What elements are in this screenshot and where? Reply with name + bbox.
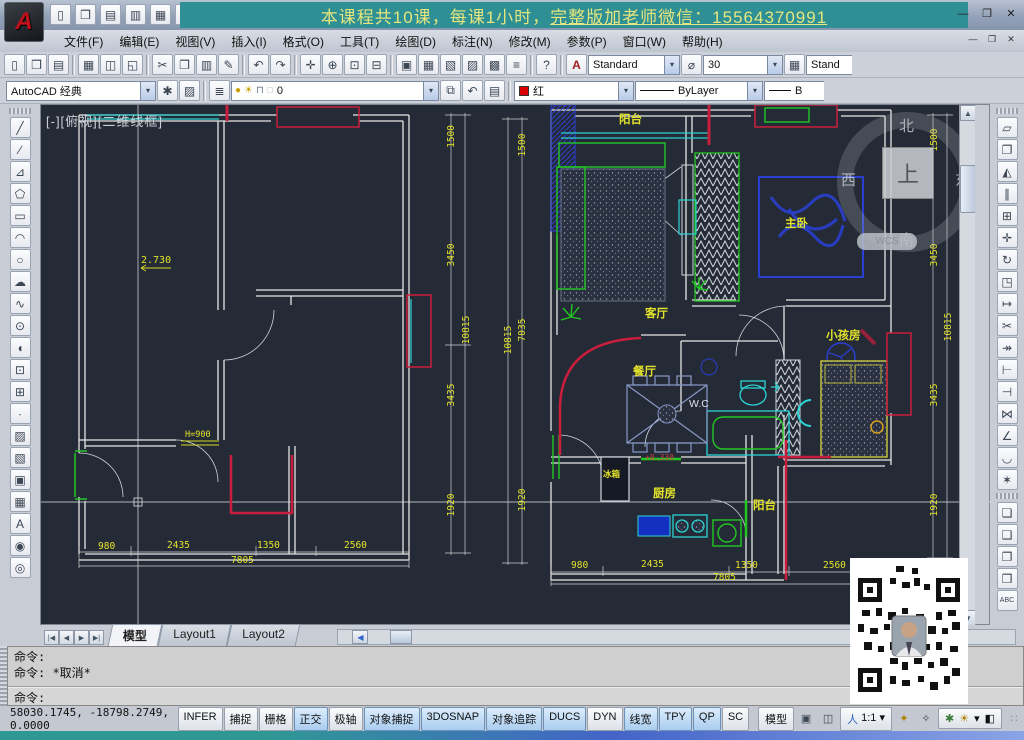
dim-text: 1920 (517, 488, 528, 511)
status-toggle-对象追踪[interactable]: 对象追踪 (486, 707, 542, 731)
window-height-text: H=900 (185, 430, 211, 440)
chevron-down-icon[interactable]: ▾ (618, 82, 633, 100)
polygon-icon[interactable]: ⬠ (10, 183, 31, 204)
break-at-point-icon[interactable]: ⊢ (997, 359, 1018, 380)
menu-item-0[interactable]: 文件(F) (56, 30, 111, 53)
match-properties-icon[interactable]: ✎ (218, 54, 239, 75)
left-floor-plan (75, 105, 431, 560)
dim-text: 3435 (929, 384, 940, 407)
annotation-scale-button[interactable]: 人 1:1 ▾ (840, 707, 892, 731)
dim-text: 10815 (943, 313, 954, 342)
banner-text-2: 完整版加老师微信：15564370991 (550, 3, 827, 28)
status-toggle-捕捉[interactable]: 捕捉 (224, 707, 258, 731)
dim-text: 2560 (344, 540, 367, 551)
auto-annotate-icon[interactable]: ✧ (916, 712, 936, 725)
title-bar: ▯❒▤▥▦↶ 本课程共10课，每课1小时，完整版加老师微信：1556437099… (0, 0, 1024, 30)
layer-previous-icon[interactable]: ↶ (462, 80, 483, 101)
workspace-settings-icon[interactable]: ✱ (157, 80, 178, 101)
dim-text: 1350 (735, 560, 758, 571)
horizontal-scroll-thumb[interactable] (390, 630, 412, 644)
status-toggle-正交[interactable]: 正交 (294, 707, 328, 731)
undo-icon[interactable]: ↶ (248, 54, 269, 75)
send-to-back-icon[interactable]: ❑ (997, 524, 1018, 545)
status-toggle-infer[interactable]: INFER (178, 707, 223, 731)
offset-icon[interactable]: ∥ (997, 183, 1018, 204)
dim-text: 3435 (446, 384, 457, 407)
bring-to-front-icon[interactable]: ❏ (997, 502, 1018, 523)
model-space-button[interactable]: 模型 (758, 707, 794, 731)
paste-icon[interactable]: ▥ (196, 54, 217, 75)
rectangle-icon[interactable]: ▭ (10, 205, 31, 226)
status-toggle-对象捕捉[interactable]: 对象捕捉 (364, 707, 420, 731)
status-bar: 58030.1745, -18798.2749, 0.0000 INFER捕捉栅… (0, 706, 1024, 731)
dim-text: 2435 (167, 540, 190, 551)
window-controls: — ❐ ✕ (954, 6, 1020, 22)
revision-cloud-icon[interactable]: ☁ (10, 271, 31, 292)
scroll-left-icon[interactable]: ◀ (352, 630, 368, 644)
banner-text-1: 本课程共10课，每课1小时， (321, 3, 550, 28)
layout-tabs: 模型 Layout1 Layout2 (110, 624, 297, 646)
menu-item-8[interactable]: 修改(M) (501, 30, 559, 53)
open-icon[interactable]: ❒ (75, 4, 96, 25)
tab-navigation: |◀ ◀ ▶ ▶| (44, 630, 104, 645)
viewcube-north-label[interactable]: 北 (899, 115, 914, 136)
layer-states-icon[interactable]: ▤ (484, 80, 505, 101)
dim-text: 7805 (713, 572, 736, 583)
drawing-canvas[interactable]: 980 2435 1350 2560 7805 980 2435 1350 25… (40, 104, 990, 625)
toolbar-separator (390, 55, 393, 75)
menu-item-3[interactable]: 插入(I) (223, 30, 274, 53)
close-icon[interactable]: ✕ (1002, 6, 1020, 22)
construction-line-icon[interactable]: ∕ (10, 139, 31, 160)
redo-icon[interactable]: ↷ (270, 54, 291, 75)
room-label-wc: W.C (689, 398, 709, 410)
status-toggle-线宽[interactable]: 线宽 (624, 707, 658, 731)
pan-icon[interactable]: ✛ (300, 54, 321, 75)
bottom-strip (0, 731, 1024, 740)
last-tab-icon[interactable]: ▶| (89, 630, 104, 645)
status-toggles: INFER捕捉栅格正交极轴对象捕捉3DOSNAP对象追踪DUCSDYN线宽TPY… (178, 707, 751, 731)
menu-item-4[interactable]: 格式(O) (275, 30, 332, 53)
bring-above-icon[interactable]: ❐ (997, 546, 1018, 567)
chevron-down-icon[interactable]: ▾ (767, 56, 782, 74)
status-tray: ✱ ☀ ▾ ◧ (938, 708, 1002, 729)
room-label-balcony-bottom: 阳台 (753, 498, 776, 512)
command-window-grip[interactable] (0, 646, 7, 706)
point-icon[interactable]: ∙ (10, 403, 31, 424)
status-toggle-ducs[interactable]: DUCS (543, 707, 586, 731)
zoom-window-icon[interactable]: ⊡ (344, 54, 365, 75)
level-text: +0.330 (645, 453, 674, 462)
cut-icon[interactable]: ✂ (152, 54, 173, 75)
toolbar-grip[interactable] (996, 108, 1018, 114)
text-style-combo[interactable]: Standard ▾ (588, 55, 680, 75)
tool-palettes-icon[interactable]: ▧ (440, 54, 461, 75)
maximize-icon[interactable]: ❐ (978, 6, 996, 22)
plot-preview-icon[interactable]: ◫ (100, 54, 121, 75)
status-toggle-栅格[interactable]: 栅格 (259, 707, 293, 731)
break-icon[interactable]: ⊣ (997, 381, 1018, 402)
toolbar-separator (242, 55, 245, 75)
tab-layout1[interactable]: Layout1 (158, 624, 231, 646)
region-icon[interactable]: ▣ (10, 469, 31, 490)
properties-icon[interactable]: ▣ (396, 54, 417, 75)
circle-icon[interactable]: ○ (10, 249, 31, 270)
color-combo[interactable]: 红 ▾ (514, 81, 634, 101)
copy-icon[interactable]: ❐ (997, 139, 1018, 160)
room-label-balcony-top: 阳台 (619, 112, 642, 126)
layer-freeze-icon[interactable]: ☀ (244, 85, 253, 96)
viewcube-west-label[interactable]: 西 (841, 169, 856, 190)
menu-item-11[interactable]: 帮助(H) (674, 30, 731, 53)
new-icon[interactable]: ▯ (4, 54, 25, 75)
dim-text: 2435 (641, 559, 664, 570)
menu-item-10[interactable]: 窗口(W) (615, 30, 674, 53)
workspace-save-icon[interactable]: ▨ (179, 80, 200, 101)
room-label-dining: 餐厅 (632, 364, 656, 378)
dim-text: 1920 (929, 493, 940, 516)
polyline-icon[interactable]: ⊿ (10, 161, 31, 182)
mirror-icon[interactable]: ◭ (997, 161, 1018, 182)
zoom-realtime-icon[interactable]: ⊕ (322, 54, 343, 75)
left-dock: ╱∕⊿⬠▭◠○☁∿⊙◖⊡⊞∙▨▧▣▦A◉◎ (0, 104, 40, 646)
toolbar-grip[interactable] (9, 108, 31, 114)
extend-icon[interactable]: ↠ (997, 337, 1018, 358)
make-block-icon[interactable]: ⊞ (10, 381, 31, 402)
toolbar-separator (146, 55, 149, 75)
dim-text: 10815 (461, 316, 472, 345)
room-label-kids: 小孩房 (825, 328, 861, 342)
linetype-combo[interactable]: ByLayer ▾ (635, 81, 763, 101)
menu-bar: 文件(F)编辑(E)视图(V)插入(I)格式(O)工具(T)绘图(D)标注(N)… (0, 30, 1024, 52)
insert-block-icon[interactable]: ⊡ (10, 359, 31, 380)
menu-item-7[interactable]: 标注(N) (444, 30, 501, 53)
gradient-icon[interactable]: ▧ (10, 447, 31, 468)
status-toggle-3dosnap[interactable]: 3DOSNAP (421, 707, 486, 731)
room-label-kitchen: 厨房 (653, 486, 676, 500)
layer-combo[interactable]: ● ☀ ⊓ ■ 0 ▾ (231, 81, 439, 101)
tab-model[interactable]: 模型 (108, 624, 163, 646)
doc-minimize-icon[interactable]: — (966, 33, 980, 46)
spline-icon[interactable]: ∿ (10, 293, 31, 314)
right-dock: ▱❐◭∥⊞✛↻◳↦✂↠⊢⊣⋈∠◡✶ ❏❑❐❒ABC (990, 104, 1024, 646)
menu-item-1[interactable]: 编辑(E) (111, 30, 167, 53)
workspace-combo[interactable]: AutoCAD 经典 ▾ (6, 81, 156, 101)
next-tab-icon[interactable]: ▶ (74, 630, 89, 645)
qr-center-photo (892, 616, 926, 656)
layer-lock-icon[interactable]: ⊓ (256, 85, 264, 96)
qr-code-overlay (850, 558, 968, 704)
multiline-text-icon[interactable]: A (10, 513, 31, 534)
toolbar-separator (294, 55, 297, 75)
array-icon[interactable]: ⊞ (997, 205, 1018, 226)
draw-toolbar: ╱∕⊿⬠▭◠○☁∿⊙◖⊡⊞∙▨▧▣▦A◉◎ (0, 104, 40, 578)
table-style-combo[interactable]: Stand (806, 55, 852, 75)
layout-icon[interactable]: ▣ (796, 712, 816, 725)
scale-icon[interactable]: ◳ (997, 271, 1018, 292)
dim-text: 2560 (823, 560, 846, 571)
chevron-down-icon[interactable]: ▾ (664, 56, 679, 74)
menu-item-5[interactable]: 工具(T) (332, 30, 387, 53)
dim-text: 3450 (446, 243, 457, 266)
status-right-group: 模型 ▣ ◫ 人 1:1 ▾ ✦ ✧ ✱ ☀ ▾ ◧ ∷ (758, 707, 1024, 731)
dim-text: 10815 (503, 326, 514, 355)
dim-text: 1920 (446, 493, 457, 516)
open-icon[interactable]: ❒ (26, 54, 47, 75)
layers-properties-toolbar: AutoCAD 经典 ▾ ✱ ▨ ≣ ● ☀ ⊓ ■ 0 ▾ ⧉ ↶ ▤ 红 ▾… (0, 78, 1024, 104)
coordinates-readout[interactable]: 58030.1745, -18798.2749, 0.0000 (0, 706, 178, 732)
new-icon[interactable]: ▯ (50, 4, 71, 25)
annotation-person-icon: 人 (847, 711, 858, 727)
chevron-down-icon[interactable]: ▾ (747, 82, 762, 100)
text-to-front-icon[interactable]: ABC (997, 590, 1018, 611)
room-label-fridge: 冰箱 (603, 469, 621, 479)
sheet-set-icon[interactable]: ▨ (462, 54, 483, 75)
wcs-button[interactable]: WCS (857, 233, 917, 250)
layer-on-icon[interactable]: ● (235, 85, 241, 96)
dimension-lines (79, 113, 953, 586)
workspace-gear-icon[interactable]: ✱ (945, 712, 954, 725)
line-icon[interactable]: ╱ (10, 117, 31, 138)
scroll-up-icon[interactable]: ▲ (960, 105, 976, 121)
toolbar-separator (530, 55, 533, 75)
dim-text: 1500 (517, 133, 528, 156)
stretch-icon[interactable]: ↦ (997, 293, 1018, 314)
prev-tab-icon[interactable]: ◀ (59, 630, 74, 645)
dim-text: 1350 (257, 540, 280, 551)
elevation-text: 2.730 (141, 255, 171, 266)
dim-text: 980 (571, 560, 588, 571)
help-icon[interactable]: ? (536, 54, 557, 75)
text-style-icon[interactable]: A (566, 54, 587, 75)
ellipse-icon[interactable]: ⊙ (10, 315, 31, 336)
quickcalc-icon[interactable]: ≡ (506, 54, 527, 75)
dim-text: 7805 (231, 555, 254, 566)
hatch-icon[interactable]: ▨ (10, 425, 31, 446)
color-swatch (519, 86, 529, 96)
lineweight-sample (769, 90, 791, 91)
chamfer-icon[interactable]: ∠ (997, 425, 1018, 446)
doc-restore-icon[interactable]: ❐ (985, 33, 999, 46)
chevron-down-icon[interactable]: ▾ (423, 82, 438, 100)
dim-text: 980 (98, 541, 115, 552)
dock-gap (975, 105, 989, 624)
fillet-icon[interactable]: ◡ (997, 447, 1018, 468)
join-icon[interactable]: ⋈ (997, 403, 1018, 424)
send-under-icon[interactable]: ❒ (997, 568, 1018, 589)
dim-text: 7035 (517, 319, 528, 342)
layer-properties-icon[interactable]: ≣ (209, 80, 230, 101)
doc-close-icon[interactable]: ✕ (1004, 33, 1018, 46)
room-label-living: 客厅 (644, 306, 668, 320)
dim-scale-combo[interactable]: 30 ▾ (703, 55, 783, 75)
status-toggle-极轴[interactable]: 极轴 (329, 707, 363, 731)
document-window-controls: — ❐ ✕ (966, 33, 1018, 46)
plot-icon[interactable]: ▦ (78, 54, 99, 75)
course-banner: 本课程共10课，每课1小时，完整版加老师微信：15564370991 (180, 2, 968, 28)
vertical-scrollbar[interactable]: ▲ ▼ (959, 105, 975, 626)
dim-style-icon[interactable]: ⌀ (681, 54, 702, 75)
annotation-visibility-icon[interactable]: ✦ (894, 712, 914, 725)
table-icon[interactable]: ▦ (10, 491, 31, 512)
dimension-texts: 980 2435 1350 2560 7805 980 2435 1350 25… (98, 125, 954, 583)
designcenter-icon[interactable]: ▦ (418, 54, 439, 75)
save-icon[interactable]: ▤ (48, 54, 69, 75)
autocad-window: ▯❒▤▥▦↶ 本课程共10课，每课1小时，完整版加老师微信：1556437099… (0, 0, 1024, 740)
status-toggle-qp[interactable]: QP (693, 707, 721, 731)
explode-icon[interactable]: ✶ (997, 469, 1018, 490)
zoom-previous-icon[interactable]: ⊟ (366, 54, 387, 75)
publish-icon[interactable]: ◱ (122, 54, 143, 75)
vertical-scroll-thumb[interactable] (960, 165, 976, 213)
tab-layout2[interactable]: Layout2 (226, 624, 299, 646)
tray-arrow-icon[interactable]: ▾ (974, 712, 980, 725)
first-tab-icon[interactable]: |◀ (44, 630, 59, 645)
toolbar-grip[interactable] (996, 493, 1018, 499)
status-toggle-tpy[interactable]: TPY (659, 707, 692, 731)
resize-grip-icon[interactable]: ∷ (1004, 712, 1024, 725)
toolbar-separator (72, 55, 75, 75)
table-style-icon[interactable]: ▦ (784, 54, 805, 75)
ellipse-arc-icon[interactable]: ◖ (10, 337, 31, 358)
viewcube-top-face[interactable]: 上 (882, 147, 934, 199)
room-label-master: 主卧 (785, 216, 808, 230)
qr-code (856, 564, 962, 698)
chevron-down-icon[interactable]: ▾ (140, 82, 155, 100)
lineweight-combo[interactable]: B (764, 81, 824, 101)
markup-icon[interactable]: ▩ (484, 54, 505, 75)
clean-screen-icon[interactable]: ◧ (985, 712, 995, 725)
menu-item-6[interactable]: 绘图(D) (387, 30, 444, 53)
save-icon[interactable]: ▤ (100, 4, 121, 25)
make-object-layer-current-icon[interactable]: ⧉ (440, 80, 461, 101)
standard-toolbar: ▯❒▤▦◫◱✂❐▥✎↶↷✛⊕⊡⊟▣▦▧▨▩≡? A Standard ▾ ⌀ 3… (0, 52, 1024, 78)
menu-item-9[interactable]: 参数(P) (559, 30, 615, 53)
measure-icon[interactable]: ◎ (10, 557, 31, 578)
plot-icon[interactable]: ▦ (150, 4, 171, 25)
status-toggle-sc[interactable]: SC (722, 707, 749, 731)
linetype-sample (640, 90, 674, 91)
minimize-icon[interactable]: — (954, 6, 972, 22)
status-toggle-dyn[interactable]: DYN (587, 707, 622, 731)
quick-view-icon[interactable]: ◫ (818, 712, 838, 725)
menu-item-2[interactable]: 视图(V) (167, 30, 223, 53)
copy-icon[interactable]: ❐ (174, 54, 195, 75)
viewport-label[interactable]: [-][俯视][二维线框] (46, 111, 163, 130)
move-icon[interactable]: ✛ (997, 227, 1018, 248)
dim-text: 1500 (446, 125, 457, 148)
arc-icon[interactable]: ◠ (10, 227, 31, 248)
quick-access-toolbar: ▯❒▤▥▦↶ (50, 4, 196, 25)
trim-icon[interactable]: ✂ (997, 315, 1018, 336)
modify-toolbar: ▱❐◭∥⊞✛↻◳↦✂↠⊢⊣⋈∠◡✶ ❏❑❐❒ABC (990, 104, 1024, 611)
erase-icon[interactable]: ▱ (997, 117, 1018, 138)
status-bulb-icon[interactable]: ☀ (959, 712, 969, 725)
divide-icon[interactable]: ◉ (10, 535, 31, 556)
saveas-icon[interactable]: ▥ (125, 4, 146, 25)
rotate-icon[interactable]: ↻ (997, 249, 1018, 270)
application-menu-button[interactable]: A (4, 2, 44, 42)
